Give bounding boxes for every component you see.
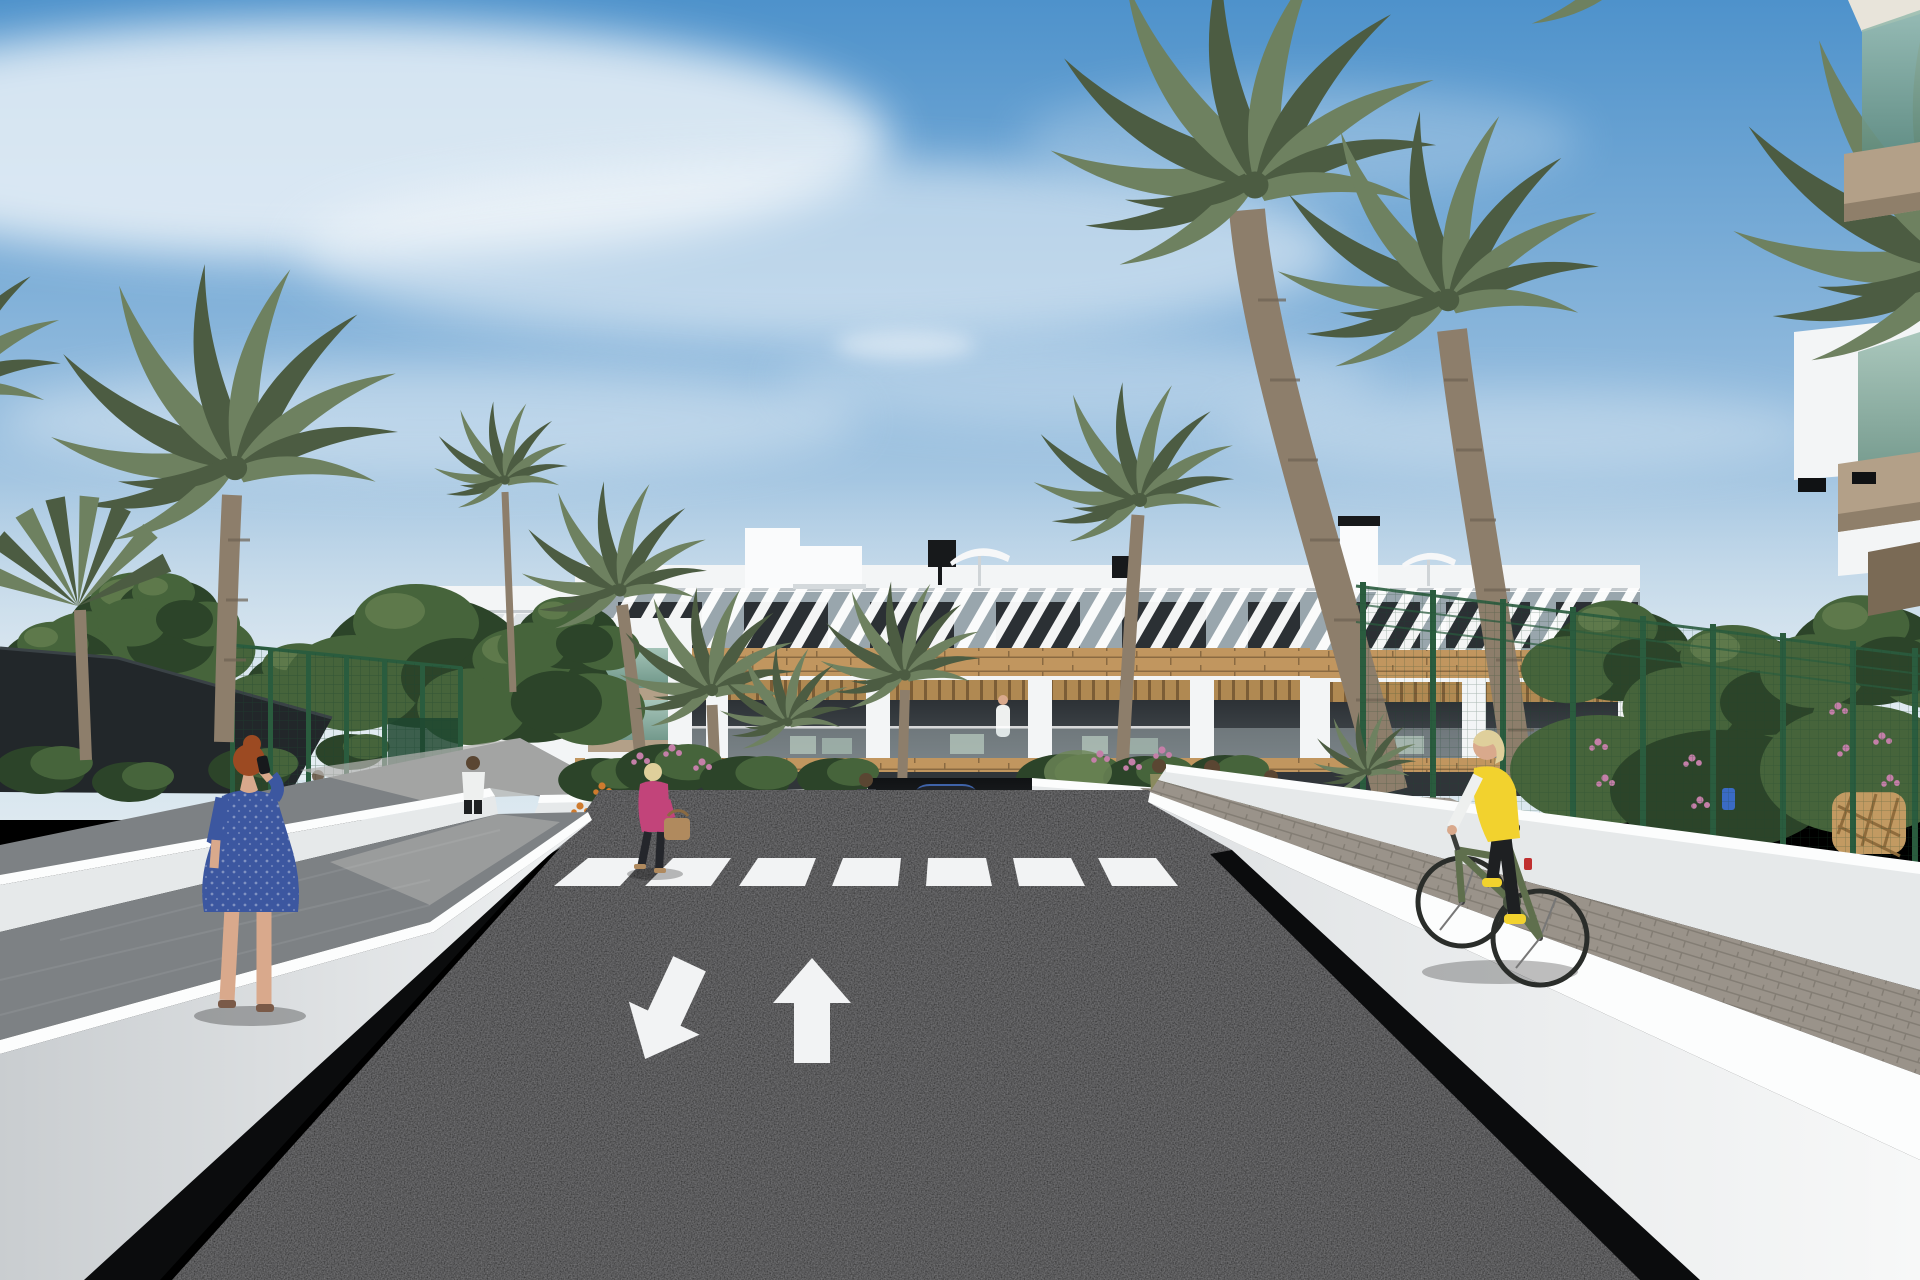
crosswalk-stripe xyxy=(926,858,992,886)
hair-bun xyxy=(243,735,261,753)
stone-wall xyxy=(1868,542,1920,616)
scene-canvas xyxy=(0,0,1920,1280)
shoe xyxy=(1504,914,1526,924)
wall-lamp xyxy=(1852,472,1876,484)
arm xyxy=(214,840,216,868)
wall-lamp xyxy=(1798,478,1826,492)
green-glass-balcony xyxy=(1862,10,1920,162)
balcony-resident xyxy=(998,695,1008,705)
sleeve xyxy=(272,776,278,798)
roof-box xyxy=(798,546,862,588)
figure-shadow xyxy=(194,1006,306,1026)
render-scene xyxy=(0,0,1920,1280)
shoe xyxy=(256,1004,274,1012)
t-shirt xyxy=(462,772,485,802)
head xyxy=(644,763,662,781)
shoe xyxy=(1482,878,1502,887)
crosswalk-stripe xyxy=(832,858,901,886)
balcony-unit xyxy=(890,680,1028,762)
head xyxy=(466,756,480,770)
leg xyxy=(659,832,661,870)
leg xyxy=(227,908,232,1000)
balcony-unit xyxy=(1214,680,1300,762)
rear-reflector xyxy=(1524,858,1532,870)
shoe xyxy=(218,1000,236,1008)
roof-stair-box xyxy=(745,528,800,588)
handbag xyxy=(664,818,690,840)
green-glass-balcony xyxy=(1858,332,1920,474)
leg-far xyxy=(1492,836,1498,882)
